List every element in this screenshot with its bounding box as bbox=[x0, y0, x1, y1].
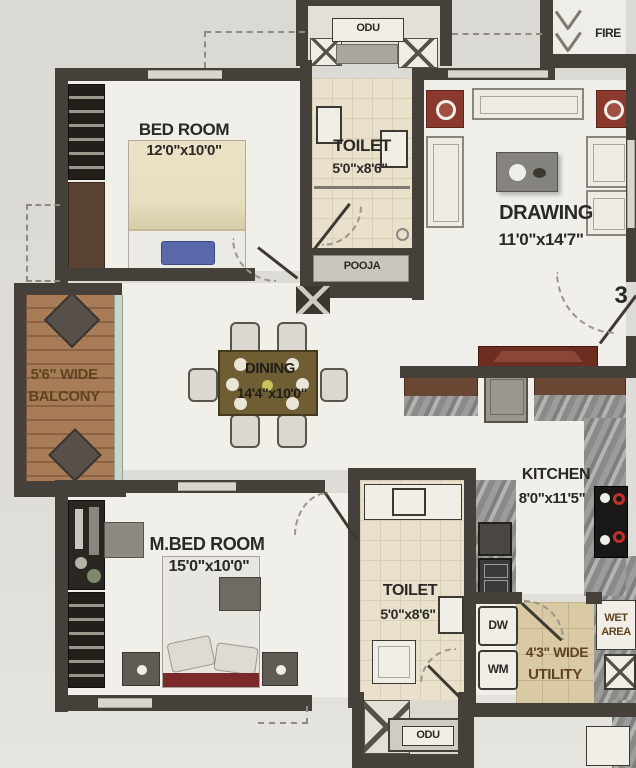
drawing-dims: 11'0"x14'7" bbox=[498, 230, 583, 250]
toilet-top-shower-partition bbox=[314, 186, 410, 189]
wall bbox=[296, 2, 308, 66]
wall bbox=[464, 592, 522, 604]
wall bbox=[464, 468, 476, 708]
wall bbox=[55, 268, 255, 281]
wall bbox=[352, 754, 474, 768]
decor-icon bbox=[87, 569, 101, 583]
refrigerator bbox=[484, 371, 528, 423]
drawing-coffee-table bbox=[496, 152, 558, 192]
toilet-bottom-label: TOILET bbox=[383, 582, 437, 600]
mbed-foot-bench bbox=[163, 673, 259, 687]
mbed-dims: 15'0"x10'0" bbox=[169, 558, 250, 576]
drawing-chaise bbox=[426, 136, 464, 228]
odu-top-label: ODU bbox=[356, 22, 379, 34]
toilet-top-dims: 5'0"x8'6" bbox=[332, 160, 387, 176]
wall bbox=[586, 592, 602, 604]
floor-plan: BED ROOM 12'0"x10'0" TOILET 5'0"x8'6" PO… bbox=[0, 0, 636, 768]
drawing-chair-1 bbox=[586, 136, 630, 188]
drawing-label: DRAWING bbox=[499, 202, 593, 225]
mbed-desk bbox=[104, 522, 144, 558]
balcony-glass-partition bbox=[114, 295, 123, 481]
odu-top-unit bbox=[336, 44, 398, 64]
kitchen-cabinet-left bbox=[404, 377, 478, 397]
kitchen-cabinet-right bbox=[534, 377, 626, 397]
wall bbox=[348, 468, 476, 480]
wet-area-label-line2: AREA bbox=[601, 626, 631, 638]
drawing-sofa bbox=[472, 88, 584, 120]
toilet-bottom-shower bbox=[372, 640, 416, 684]
wall bbox=[400, 366, 636, 378]
mbed-side-unit bbox=[219, 577, 261, 611]
shaft-box-icon bbox=[296, 286, 330, 314]
stove-hob bbox=[594, 486, 628, 558]
bedroom-bed bbox=[128, 140, 246, 271]
wall bbox=[348, 468, 360, 708]
mbed-nightstand bbox=[122, 652, 160, 686]
burner-icon bbox=[613, 531, 625, 543]
wall bbox=[412, 68, 424, 300]
wall bbox=[300, 60, 312, 288]
window bbox=[98, 698, 152, 708]
mbed-nightstand bbox=[262, 652, 298, 686]
drawing-side-table-left bbox=[426, 90, 464, 128]
window bbox=[148, 70, 222, 79]
kitchen-label: KITCHEN bbox=[522, 466, 590, 484]
burner-icon bbox=[613, 493, 625, 505]
dining-chair bbox=[188, 368, 218, 402]
dining-chair bbox=[277, 414, 307, 448]
wall bbox=[440, 2, 452, 66]
window bbox=[448, 70, 548, 78]
kitchen-tv-unit bbox=[478, 346, 598, 367]
wall bbox=[14, 283, 26, 497]
wall bbox=[14, 283, 122, 295]
fire-label: FIRE bbox=[595, 26, 621, 40]
washing-machine-label: WM bbox=[488, 662, 509, 676]
wall bbox=[540, 54, 636, 68]
window bbox=[178, 482, 236, 491]
balcony-label-line1: 5'6" WIDE bbox=[30, 366, 97, 383]
dining-label: DINING bbox=[245, 360, 295, 377]
burner-icon bbox=[600, 535, 610, 545]
wet-area-label-line1: WET bbox=[604, 612, 627, 624]
bedroom-wardrobe bbox=[68, 84, 105, 180]
utility-fixture bbox=[586, 726, 630, 766]
decor-icon bbox=[75, 557, 87, 569]
balcony-label-line2: BALCONY bbox=[28, 388, 99, 405]
mbed-wardrobe bbox=[68, 592, 105, 688]
kitchen-appliance bbox=[478, 522, 512, 556]
projection-line bbox=[205, 31, 305, 33]
bedroom-cabinet bbox=[68, 182, 105, 270]
odu-bottom-label: ODU bbox=[416, 729, 439, 741]
odu-top-shaft-right-icon bbox=[398, 38, 438, 68]
wet-area-box bbox=[596, 600, 636, 650]
burner-icon bbox=[600, 493, 610, 503]
dining-chair bbox=[320, 368, 348, 402]
wall bbox=[464, 703, 636, 717]
toilet-bottom-washbasin bbox=[392, 488, 426, 516]
projection-line bbox=[452, 33, 542, 35]
bedroom-label: BED ROOM bbox=[139, 120, 229, 140]
mbed-pillow bbox=[166, 635, 215, 673]
kitchen-dims: 8'0"x11'5" bbox=[519, 490, 586, 507]
bed-pillow bbox=[161, 241, 215, 265]
wet-area-drain-icon bbox=[604, 654, 636, 690]
mbed-label: M.BED ROOM bbox=[150, 534, 265, 555]
dishwasher-label: DW bbox=[488, 618, 507, 632]
toilet-top-drain-icon bbox=[396, 228, 409, 241]
window bbox=[627, 140, 635, 228]
projection-line bbox=[306, 706, 308, 724]
wall bbox=[55, 480, 68, 712]
mbed-dresser bbox=[68, 500, 105, 590]
dining-dims: 14'4"x10'0" bbox=[237, 385, 307, 401]
projection-box bbox=[26, 204, 60, 282]
bedroom-dims: 12'0"x10'0" bbox=[146, 142, 221, 159]
dining-chair bbox=[230, 414, 260, 448]
wall bbox=[296, 0, 452, 6]
drawing-side-table-right bbox=[596, 90, 630, 128]
mbed-pillow bbox=[213, 642, 258, 676]
utility-label-line1: 4'3" WIDE bbox=[526, 644, 588, 660]
kitchen-counter-left bbox=[404, 396, 478, 416]
wall bbox=[55, 695, 312, 711]
toilet-bottom-dims: 5'0"x8'6" bbox=[380, 606, 435, 622]
utility-label-line2: UTILITY bbox=[528, 666, 582, 683]
entrance-door-number: 3 bbox=[615, 282, 628, 310]
toilet-top-label: TOILET bbox=[333, 136, 391, 156]
projection-line bbox=[204, 31, 206, 68]
projection-line bbox=[258, 722, 308, 724]
pooja-label: POOJA bbox=[344, 260, 381, 272]
toilet-bottom-wc bbox=[438, 596, 464, 634]
